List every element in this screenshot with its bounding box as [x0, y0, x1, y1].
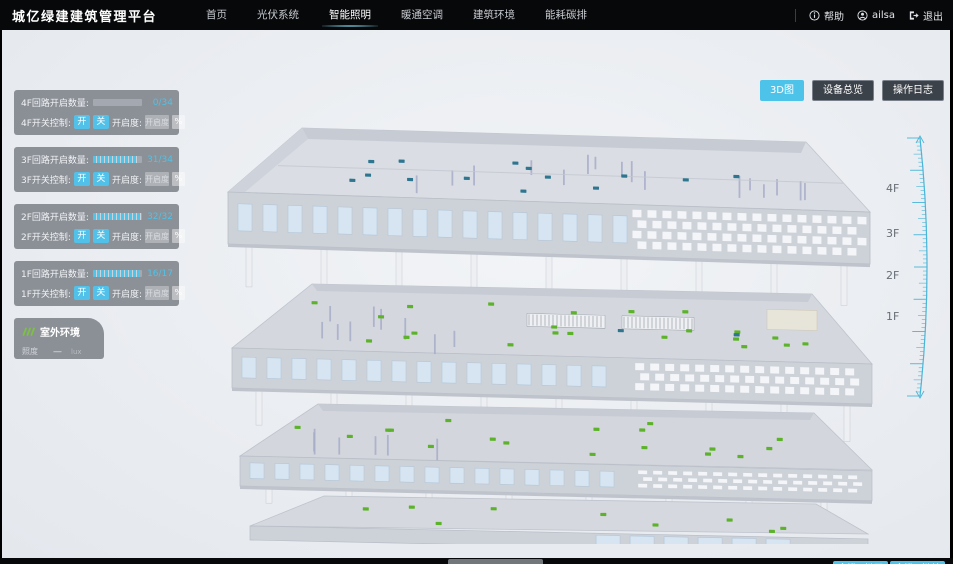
loop-count-progress	[93, 156, 142, 163]
progress-fill	[93, 156, 138, 163]
dim-input[interactable]	[145, 115, 169, 129]
building-floor-1f	[250, 496, 868, 544]
loop-count-row: 3F回路开启数量: 31/34	[21, 153, 173, 166]
illuminance-label: 照度	[22, 346, 38, 357]
switch-off-button[interactable]: 关	[93, 172, 109, 186]
loop-count-label: 4F回路开启数量:	[21, 96, 89, 109]
logout-icon	[908, 10, 919, 21]
nav-item-energy[interactable]: 能耗碳排	[530, 0, 602, 30]
switch-label: 4F开关控制:	[21, 116, 71, 129]
help-icon	[809, 10, 820, 21]
switch-off-button[interactable]: 关	[93, 115, 109, 129]
loop-count-value: 16/17	[147, 269, 173, 279]
progress-fill	[93, 213, 142, 220]
floor-panel-4f: 4F回路开启数量: 0/34 4F开关控制: 开 关 开启度: %	[14, 90, 179, 135]
user-name: ailsa	[872, 10, 895, 21]
nav-item-pv[interactable]: 光伏系统	[242, 0, 314, 30]
switch-off-button[interactable]: 关	[93, 286, 109, 300]
dim-input[interactable]	[145, 229, 169, 243]
illuminance-unit: lux	[71, 348, 82, 356]
view-3d-button[interactable]: 3D图	[760, 80, 804, 101]
nav-active-underline	[322, 25, 378, 27]
floor-panel-3f: 3F回路开启数量: 31/34 3F开关控制: 开 关 开启度: %	[14, 147, 179, 192]
operation-log-button[interactable]: 操作日志	[882, 80, 944, 101]
switch-on-button[interactable]: 开	[74, 286, 90, 300]
loop-count-row: 1F回路开启数量: 16/17	[21, 267, 173, 280]
switch-row: 2F开关控制: 开 关 开启度: %	[21, 229, 173, 243]
logout-button[interactable]: 退出	[908, 8, 943, 23]
floor-panel-1f: 1F回路开启数量: 16/17 1F开关控制: 开 关 开启度: %	[14, 261, 179, 306]
loop-count-label: 1F回路开启数量:	[21, 267, 89, 280]
user-icon	[857, 10, 868, 21]
main-content: 4F回路开启数量: 0/34 4F开关控制: 开 关 开启度: % 3F回路开启…	[2, 30, 950, 558]
dim-input[interactable]	[145, 172, 169, 186]
dim-input[interactable]	[145, 286, 169, 300]
device-overview-button[interactable]: 设备总览	[812, 80, 874, 101]
loop-count-row: 4F回路开启数量: 0/34	[21, 96, 173, 109]
outdoor-env-title: 室外环境	[40, 324, 80, 339]
percent-button[interactable]: %	[172, 115, 185, 129]
nav-item-hvac[interactable]: 暖通空调	[386, 0, 458, 30]
divider	[795, 9, 796, 22]
help-button[interactable]: 帮助	[809, 8, 844, 23]
outdoor-env-panel: 室外环境 照度 — lux	[14, 318, 104, 359]
loop-count-progress	[93, 270, 142, 277]
switch-off-button[interactable]: 关	[93, 229, 109, 243]
top-bar: 城亿绿建建筑管理平台 首页 光伏系统 智能照明 暖通空调 建筑环境 能耗碳排 帮…	[0, 0, 953, 30]
switch-on-button[interactable]: 开	[74, 115, 90, 129]
switch-row: 1F开关控制: 开 关 开启度: %	[21, 286, 173, 300]
top-bar-right: 帮助 ailsa 退出	[795, 8, 943, 23]
loop-count-value: 32/32	[147, 212, 173, 222]
switch-row: 4F开关控制: 开 关 开启度: %	[21, 115, 173, 129]
switch-label: 2F开关控制:	[21, 230, 71, 243]
progress-fill	[93, 270, 139, 277]
main-nav: 首页 光伏系统 智能照明 暖通空调 建筑环境 能耗碳排	[191, 0, 602, 30]
floor-ruler	[890, 132, 936, 402]
light-state-legend: 开启 关闭	[448, 559, 543, 564]
floor-panel-2f: 2F回路开启数量: 32/32 2F开关控制: 开 关 开启度: %	[14, 204, 179, 249]
loop-count-progress	[93, 213, 142, 220]
dim-label: 开启度:	[112, 230, 142, 243]
switch-row: 3F开关控制: 开 关 开启度: %	[21, 172, 173, 186]
building-floor-2f	[240, 404, 872, 504]
nav-item-home[interactable]: 首页	[191, 0, 242, 30]
loop-count-label: 2F回路开启数量:	[21, 210, 89, 223]
loop-count-value: 31/34	[147, 155, 173, 165]
building-floor-3f	[232, 284, 872, 407]
switch-on-button[interactable]: 开	[74, 172, 90, 186]
nav-item-lighting[interactable]: 智能照明	[314, 0, 386, 30]
nav-item-environment[interactable]: 建筑环境	[458, 0, 530, 30]
building-floor-4f	[228, 128, 870, 267]
percent-button[interactable]: %	[172, 172, 185, 186]
building-viewport[interactable]	[216, 120, 878, 544]
percent-button[interactable]: %	[172, 229, 185, 243]
building-3d-model	[216, 120, 878, 544]
app-title: 城亿绿建建筑管理平台	[12, 6, 157, 25]
dim-label: 开启度:	[112, 287, 142, 300]
loop-count-value: 0/34	[153, 98, 173, 108]
loop-count-progress	[93, 99, 142, 106]
dim-label: 开启度:	[112, 116, 142, 129]
switch-label: 3F开关控制:	[21, 173, 71, 186]
view-button-group: 3D图 设备总览 操作日志	[760, 80, 944, 101]
dim-label: 开启度:	[112, 173, 142, 186]
switch-on-button[interactable]: 开	[74, 229, 90, 243]
user-menu[interactable]: ailsa	[857, 10, 895, 21]
percent-button[interactable]: %	[172, 286, 185, 300]
illuminance-icon	[22, 327, 35, 336]
illuminance-value: —	[53, 347, 62, 357]
switch-label: 1F开关控制:	[21, 287, 71, 300]
loop-count-label: 3F回路开启数量:	[21, 153, 89, 166]
loop-count-row: 2F回路开启数量: 32/32	[21, 210, 173, 223]
